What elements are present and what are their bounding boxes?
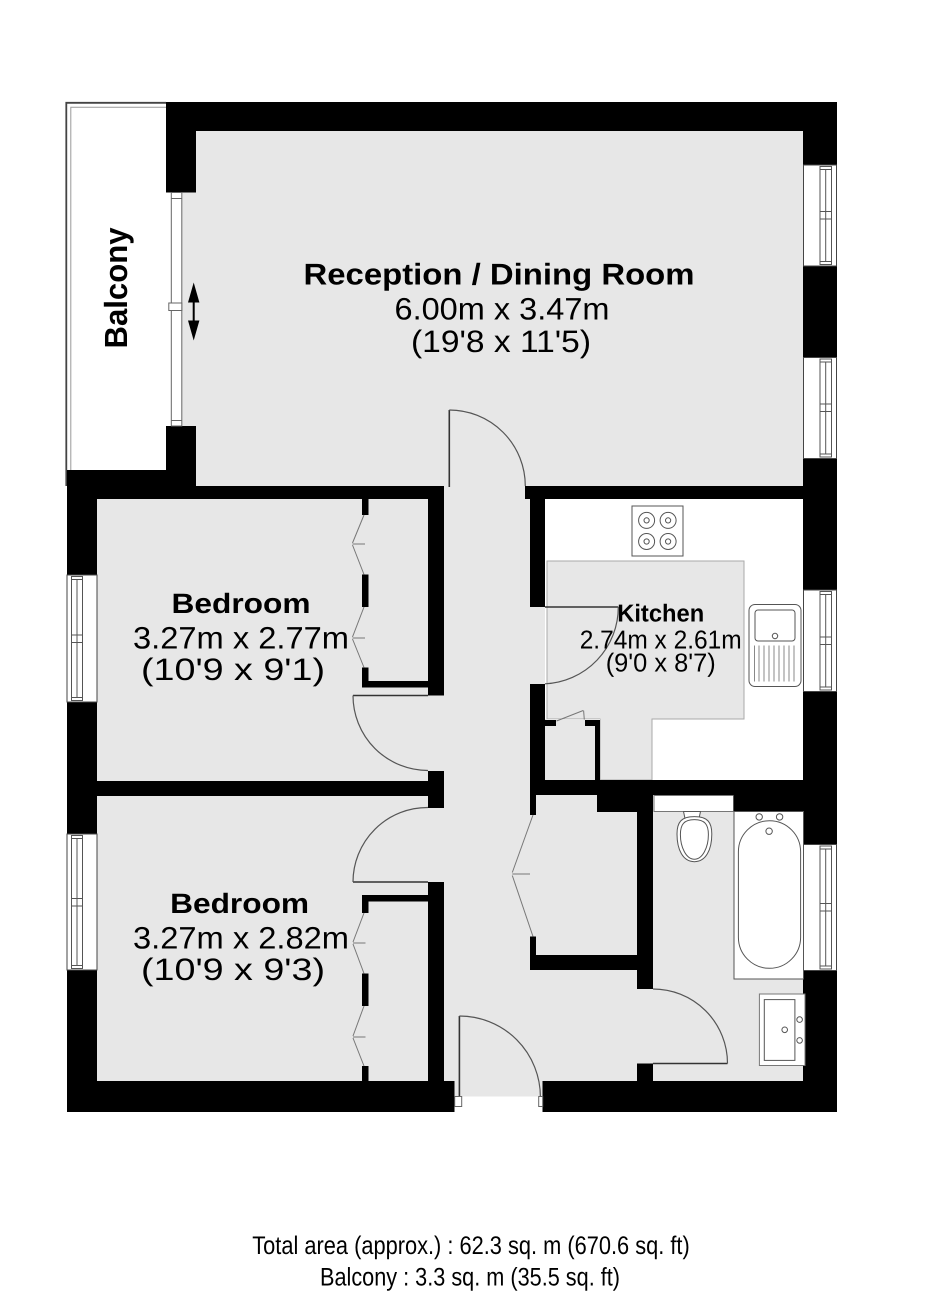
svg-text:(9'0 x 8'7): (9'0 x 8'7) xyxy=(606,648,716,678)
svg-text:(10'9 x 9'1): (10'9 x 9'1) xyxy=(141,652,325,687)
svg-text:Total area (approx.) : 62.3 sq: Total area (approx.) : 62.3 sq. m (670.6… xyxy=(252,1232,690,1260)
svg-text:Reception / Dining Room: Reception / Dining Room xyxy=(304,259,695,292)
svg-text:Balcony: Balcony xyxy=(98,227,134,348)
svg-text:6.00m x 3.47m: 6.00m x 3.47m xyxy=(395,292,610,327)
svg-text:3.27m x 2.77m: 3.27m x 2.77m xyxy=(133,621,349,656)
svg-text:Bedroom: Bedroom xyxy=(170,888,309,919)
svg-text:Bedroom: Bedroom xyxy=(172,588,311,619)
svg-text:(10'9 x 9'3): (10'9 x 9'3) xyxy=(141,952,325,987)
svg-text:(19'8 x 11'5): (19'8 x 11'5) xyxy=(411,324,591,359)
svg-text:3.27m x 2.82m: 3.27m x 2.82m xyxy=(133,921,349,956)
svg-text:Balcony : 3.3 sq. m (35.5 sq.: Balcony : 3.3 sq. m (35.5 sq. ft) xyxy=(320,1264,620,1292)
